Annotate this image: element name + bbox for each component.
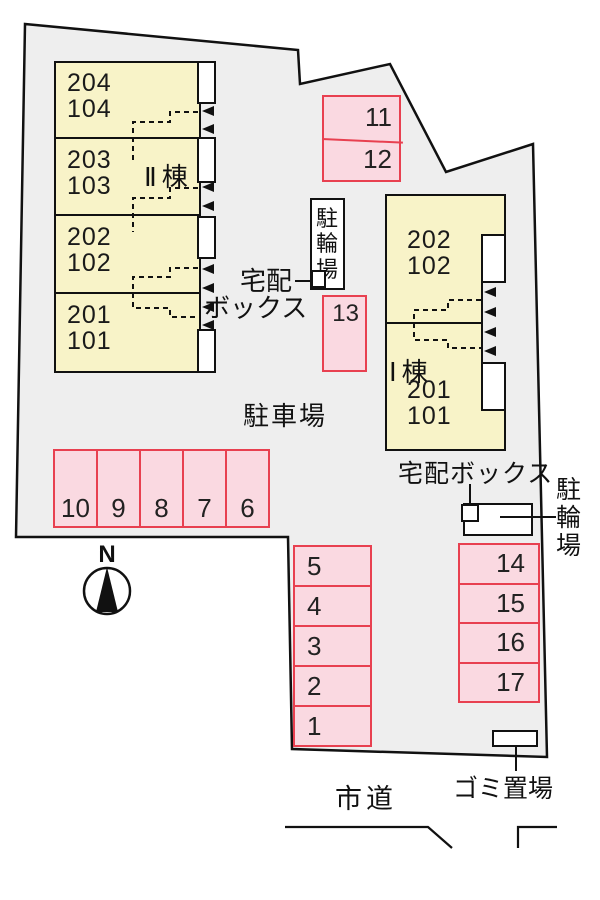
building-2-name: Ⅱ棟 — [144, 157, 193, 194]
building-2-unit-202-102: 202102 — [67, 224, 112, 277]
parking-space-8: 8 — [139, 451, 182, 526]
building-1-unit-202-102: 202102 — [407, 227, 452, 280]
parking-lot-label: 駐車場 — [243, 396, 327, 433]
balcony — [198, 138, 215, 182]
parking-space-16: 16 — [460, 622, 538, 662]
parking-pair-11-12: 11 12 — [322, 95, 401, 182]
parking-space-17: 17 — [460, 662, 538, 702]
building-2-unit-201-101: 201101 — [67, 302, 112, 355]
building-2-unit-204-104: 204104 — [67, 70, 112, 123]
site-plan: 10 9 8 7 6 11 12 13 5 4 3 2 1 14 15 16 1… — [0, 0, 600, 900]
parking-space-7: 7 — [182, 451, 225, 526]
balcony — [198, 330, 215, 372]
road-label: 市道 — [335, 777, 397, 816]
delivery-box-label-top-line2: ボックス — [204, 288, 307, 325]
parking-space-5: 5 — [295, 547, 370, 585]
parking-space-3: 3 — [295, 625, 370, 665]
parking-space-11: 11 — [324, 97, 399, 139]
parking-space-12: 12 — [324, 139, 399, 181]
balcony — [198, 62, 215, 103]
north-compass-icon — [84, 567, 130, 614]
parking-space-10: 10 — [55, 451, 96, 526]
balcony — [198, 217, 215, 258]
parking-space-13: 13 — [324, 297, 365, 370]
parking-column-5-to-1: 5 4 3 2 1 — [293, 545, 372, 747]
balcony — [482, 235, 505, 282]
parking-space-4: 4 — [295, 585, 370, 625]
parking-space-13-box: 13 — [322, 295, 367, 372]
north-label: N — [94, 541, 120, 569]
parking-space-1: 1 — [295, 705, 370, 745]
parking-row-10-to-6: 10 9 8 7 6 — [53, 449, 270, 528]
building-2-unit-203-103: 203103 — [67, 147, 112, 200]
delivery-box-marker-bottom — [461, 504, 479, 522]
parking-space-6: 6 — [225, 451, 268, 526]
bicycle-parking-label-right: 駐輪場 — [556, 476, 582, 560]
building-1-unit-201-101: 201101 — [407, 377, 452, 430]
parking-space-2: 2 — [295, 665, 370, 705]
parking-space-15: 15 — [460, 583, 538, 623]
delivery-box-marker-top — [311, 270, 326, 288]
delivery-box-label-bottom: 宅配ボックス — [398, 454, 553, 490]
parking-space-9: 9 — [96, 451, 139, 526]
garbage-area-label: ゴミ置場 — [453, 769, 553, 805]
parking-column-14-to-17: 14 15 16 17 — [458, 543, 540, 703]
garbage-area-box — [492, 730, 538, 747]
parking-space-14: 14 — [460, 545, 538, 583]
balcony — [482, 363, 505, 410]
